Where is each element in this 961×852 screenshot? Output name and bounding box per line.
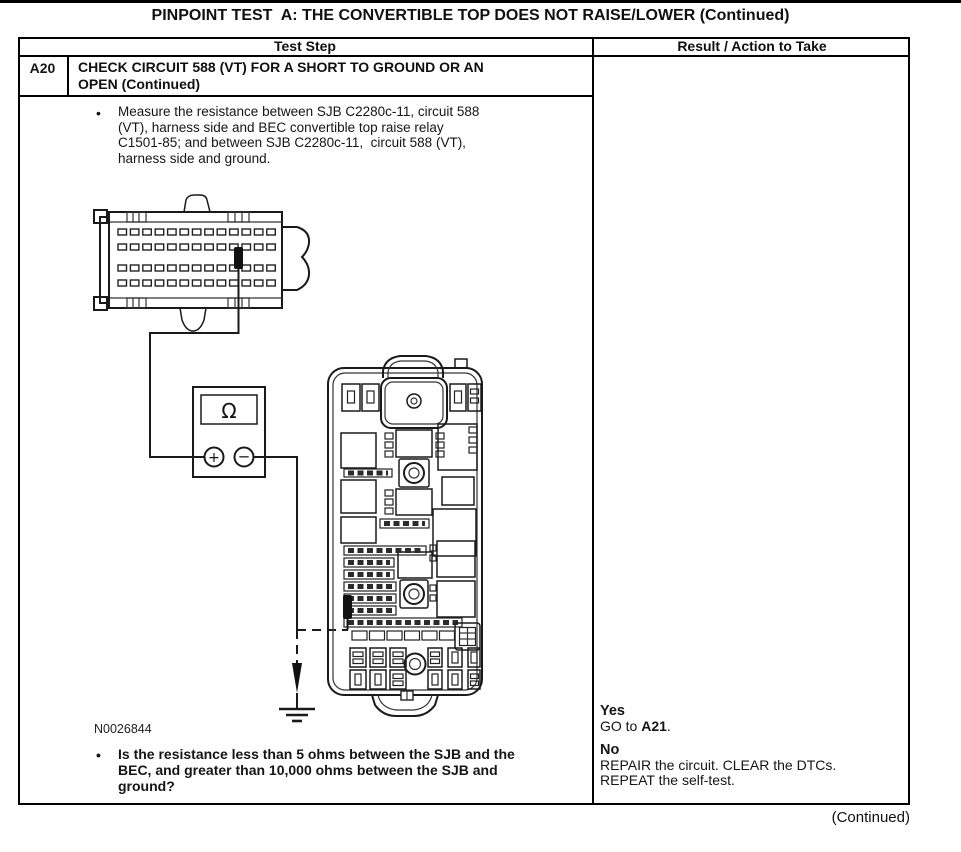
goto-step-ref: A21 [641, 718, 667, 734]
plus-symbol: + [208, 450, 220, 466]
relay-terminal-85-highlight [343, 595, 352, 619]
page-title: PINPOINT TEST A: THE CONVERTIBLE TOP DOE… [0, 7, 941, 25]
no-action-line: REPEAT the self-test. [600, 773, 900, 788]
step-title-line: CHECK CIRCUIT 588 (VT) FOR A SHORT TO GR… [78, 59, 484, 76]
continued-note: (Continued) [700, 809, 910, 826]
measure-line: (VT), harness side and BEC convertible t… [118, 120, 479, 136]
mini-fuse-holders [350, 648, 480, 689]
test-step-header: Test Step [18, 38, 592, 55]
question-line: Is the resistance less than 5 ohms betwe… [118, 746, 515, 762]
yes-action: GO to A21. [600, 719, 900, 734]
measure-line: Measure the resistance between SJB C2280… [118, 104, 479, 120]
figure-id: N0026844 [94, 722, 152, 736]
no-action-line: REPAIR the circuit. CLEAR the DTCs. [600, 758, 900, 773]
column-divider [592, 37, 594, 805]
step-title: CHECK CIRCUIT 588 (VT) FOR A SHORT TO GR… [78, 59, 484, 92]
test-lead-positive [150, 269, 239, 457]
measure-line: C1501-85; and between SJB C2280c-11, cir… [118, 135, 479, 151]
probe-tip [292, 663, 302, 693]
test-lead-negative [254, 457, 298, 630]
result-header: Result / Action to Take [594, 38, 910, 55]
service-manual-page: PINPOINT TEST A: THE CONVERTIBLE TOP DOE… [0, 0, 961, 852]
ohmmeter: Ω + − [193, 387, 265, 477]
maxi-fuse-row [352, 631, 455, 640]
result-cell: Yes GO to A21. No REPAIR the circuit. CL… [600, 704, 900, 788]
step-title-line: OPEN (Continued) [78, 76, 484, 93]
step-id: A20 [18, 60, 67, 76]
header-row-border [18, 55, 910, 57]
step-row-border [18, 95, 594, 97]
minus-symbol: − [238, 448, 251, 466]
fuse-strips [344, 469, 462, 627]
question-line: ground? [118, 778, 515, 794]
circuit-diagram: Ω + − [88, 192, 512, 732]
bus-bolts [399, 459, 429, 608]
bec-fuse-box [328, 356, 482, 716]
yes-label: Yes [600, 704, 900, 719]
sjb-connector [94, 195, 309, 331]
ground-probe-dashed [292, 630, 348, 708]
pin-11-highlight [234, 247, 243, 269]
bullet-marker: • [96, 748, 101, 763]
no-label: No [600, 743, 900, 758]
step-id-divider [67, 57, 69, 95]
question: Is the resistance less than 5 ohms betwe… [118, 746, 515, 794]
bottom-tab [372, 691, 438, 716]
bullet-marker: • [96, 106, 101, 121]
mount-bolt [407, 394, 421, 408]
ground-symbol [279, 709, 315, 721]
question-line: BEC, and greater than 10,000 ohms betwee… [118, 762, 515, 778]
terminal-tabs [385, 427, 477, 601]
measure-line: harness side and ground. [118, 151, 479, 167]
top-rule [0, 0, 961, 3]
measure-instruction: Measure the resistance between SJB C2280… [118, 104, 479, 166]
ohm-symbol: Ω [221, 399, 236, 423]
